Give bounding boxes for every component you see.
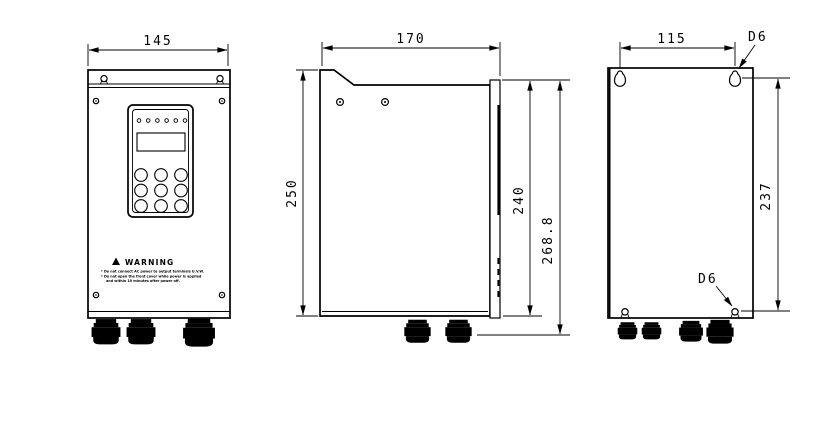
dimension-front-width: 145 — [88, 34, 228, 66]
back-cable-glands — [618, 320, 734, 344]
back-hole-spacing-h-value: 115 — [657, 32, 686, 47]
front-view: 145 — [88, 34, 230, 347]
side-enclosure-body — [320, 70, 490, 316]
side-height-value: 250 — [285, 178, 300, 207]
front-cable-glands — [92, 319, 215, 347]
front-width-value: 145 — [143, 34, 172, 49]
cable-gland — [642, 322, 662, 339]
total-height-value: 268.8 — [541, 215, 556, 264]
drawing-canvas: 145 — [0, 0, 819, 426]
back-view: 115 D6 D6 — [608, 30, 790, 344]
warning-text-line: and within 10 minutes after power off. — [106, 279, 180, 283]
cable-gland — [706, 320, 733, 344]
cable-gland — [127, 319, 156, 344]
dimension-side-height: 250 — [285, 70, 318, 316]
dimension-side-depth: 170 — [322, 32, 500, 76]
warning-title: WARNING — [125, 258, 174, 267]
back-hole-spacing-v-value: 237 — [759, 181, 774, 210]
cable-gland — [445, 320, 471, 343]
dimension-drawing: 145 — [0, 0, 819, 426]
back-mounting-plate — [490, 80, 500, 318]
cable-gland — [679, 321, 703, 342]
warning-text-line: * Do not connect AC power to output term… — [101, 270, 204, 274]
hole-dia-top-value: D6 — [748, 30, 768, 45]
plate-height-value: 240 — [512, 185, 527, 214]
hole-dia-bottom-value: D6 — [698, 272, 718, 287]
dimension-back-hole-spacing-h: 115 — [620, 32, 735, 70]
hole-callout-top: D6 — [739, 30, 768, 68]
back-enclosure-body — [608, 68, 753, 318]
cable-gland — [92, 319, 121, 344]
side-view: 170 250 — [285, 32, 570, 343]
warning-text-line: * Do not open the front cover while powe… — [101, 275, 202, 279]
cable-gland — [404, 320, 430, 343]
side-cable-glands — [404, 320, 471, 343]
cable-gland — [183, 319, 215, 347]
side-depth-value: 170 — [396, 32, 425, 47]
leader-line — [739, 45, 755, 68]
cable-gland — [618, 322, 638, 339]
keypad — [128, 105, 193, 217]
